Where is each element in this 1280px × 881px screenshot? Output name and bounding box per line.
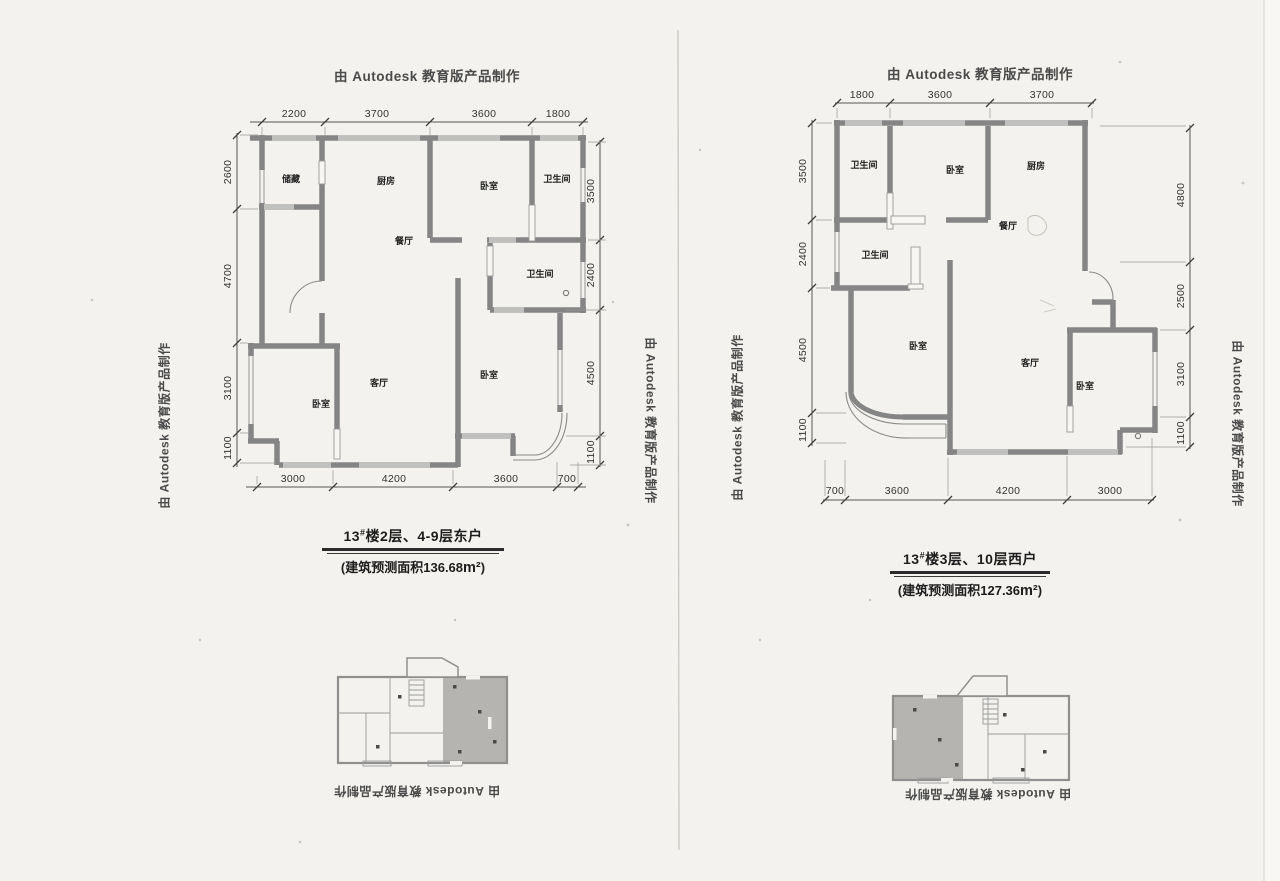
left-key-plan: [338, 658, 507, 766]
area-value: 127.36: [980, 583, 1020, 598]
right-plan-dimension-labels: 1800 3600 3700 3500 2400 4500 1100 4800 …: [797, 89, 1187, 497]
dim-label: 2400: [585, 263, 597, 288]
dim-label: 3600: [885, 485, 910, 497]
dim-label: 3500: [797, 159, 809, 184]
left-plan-area: (建筑预测面积136.68m²): [318, 557, 508, 576]
dim-label: 3600: [494, 473, 519, 485]
dim-label: 3700: [1030, 89, 1055, 101]
title-number: 13: [343, 528, 360, 544]
autodesk-watermark-right-edge-left-page: 由 Autodesk 教育版产品制作: [643, 326, 660, 516]
dim-label: 1800: [850, 89, 875, 101]
key-plan-shaded-east-unit: [443, 677, 507, 763]
dim-label: 700: [826, 485, 844, 497]
left-floor-plan: 2200 3700 3600 1800 2600 4700 3100 1100 …: [222, 108, 606, 491]
dim-label: 3000: [281, 473, 306, 485]
right-floor-plan: 1800 3600 3700 3500 2400 4500 1100 4800 …: [797, 89, 1194, 504]
dim-label: 4500: [585, 361, 597, 386]
dim-label: 4200: [996, 485, 1021, 497]
dim-label: 4500: [797, 338, 809, 363]
area-unit: m²: [1020, 583, 1038, 599]
key-plan-stair-shaft: [957, 676, 1007, 696]
paren: ): [481, 560, 485, 575]
autodesk-watermark-left-edge-right-page: 由 Autodesk 教育版产品制作: [729, 323, 746, 513]
room-label-bedroom: 卧室: [946, 164, 964, 175]
key-plan-shaded-west-unit: [893, 696, 963, 780]
right-plan-walls: [831, 120, 1157, 455]
autodesk-watermark-right-edge-right-page: 由 Autodesk 教育版产品制作: [1230, 329, 1247, 519]
room-label-bathroom: 卫生间: [850, 159, 877, 170]
autodesk-watermark-top-right-page: 由 Autodesk 教育版产品制作: [887, 63, 1073, 83]
dim-label: 1100: [222, 436, 234, 460]
dim-label: 4200: [382, 473, 407, 485]
room-label-bathroom: 卫生间: [526, 268, 553, 279]
dim-label: 3000: [1098, 485, 1123, 497]
dim-label: 4700: [222, 264, 234, 289]
scanned-floorplan-document: 2200 3700 3600 1800 2600 4700 3100 1100 …: [0, 0, 1280, 881]
autodesk-watermark-bottom-right-page: 由 Autodesk 教育版产品制作: [893, 786, 1083, 803]
left-plan-title: 13#楼2层、4-9层东户: [318, 526, 508, 546]
right-plan-area: (建筑预测面积127.36m²): [880, 580, 1060, 599]
room-label-bedroom: 卧室: [480, 369, 498, 380]
dim-label: 2500: [1175, 284, 1187, 309]
area-value: 136.68: [423, 560, 463, 575]
dim-label: 1100: [1175, 421, 1187, 445]
area-label: 建筑预测面积: [345, 560, 423, 575]
key-plan-stair-shaft: [407, 658, 458, 677]
room-label-dining: 餐厅: [394, 235, 413, 246]
room-label-bedroom: 卧室: [909, 340, 927, 351]
autodesk-watermark-bottom-left-page: 由 Autodesk 教育版产品制作: [322, 783, 512, 800]
room-label-kitchen: 厨房: [1027, 160, 1045, 171]
left-plan-dimension-labels: 2200 3700 3600 1800 2600 4700 3100 1100 …: [222, 108, 597, 485]
dim-label: 700: [558, 473, 576, 485]
area-label: 建筑预测面积: [902, 583, 980, 598]
right-plan-wall-arc: [851, 390, 903, 417]
right-plan-title-block: 13#楼3层、10层西户 (建筑预测面积127.36m²): [880, 549, 1060, 599]
dim-label: 1100: [585, 440, 597, 464]
autodesk-watermark-top-left-page: 由 Autodesk 教育版产品制作: [334, 65, 520, 85]
area-unit: m²: [463, 560, 481, 576]
title-text: 楼3层、10层西户: [925, 551, 1037, 567]
right-key-plan: [893, 676, 1069, 783]
right-plan-doors: [887, 193, 1073, 432]
room-label-bathroom: 卫生间: [543, 173, 570, 184]
autodesk-watermark-left-edge-left-page: 由 Autodesk 教育版产品制作: [156, 331, 173, 521]
dim-label: 2200: [282, 108, 307, 120]
dim-label: 3100: [222, 376, 234, 401]
title-underline: [322, 548, 504, 551]
dim-label: 2400: [797, 242, 809, 267]
dim-label: 3600: [928, 89, 953, 101]
title-underline-thin: [894, 576, 1046, 577]
dim-label: 1800: [546, 108, 571, 120]
right-plan-arcs: [846, 272, 1141, 439]
room-label-living: 客厅: [1020, 357, 1039, 368]
room-label-bedroom: 卧室: [312, 398, 330, 409]
left-plan-title-block: 13#楼2层、4-9层东户 (建筑预测面积136.68m²): [318, 526, 508, 576]
room-label-kitchen: 厨房: [377, 175, 395, 186]
left-plan-walls: [248, 135, 586, 467]
paren: ): [1038, 583, 1042, 598]
room-label-bedroom: 卧室: [480, 180, 498, 191]
room-label-storage: 储藏: [282, 173, 300, 184]
room-label-bedroom: 卧室: [1076, 380, 1094, 391]
dim-label: 4800: [1175, 183, 1187, 208]
dim-label: 3600: [472, 108, 497, 120]
dim-label: 2600: [222, 160, 234, 185]
right-plan-title: 13#楼3层、10层西户: [880, 549, 1060, 569]
dim-label: 3500: [585, 179, 597, 204]
room-label-dining: 餐厅: [998, 220, 1017, 231]
title-number: 13: [903, 551, 920, 567]
title-underline-thin: [327, 553, 499, 554]
floor-plan-drawing: 2200 3700 3600 1800 2600 4700 3100 1100 …: [0, 0, 1280, 881]
room-label-bathroom: 卫生间: [861, 249, 888, 260]
title-underline: [890, 571, 1050, 574]
room-label-living: 客厅: [369, 377, 388, 388]
dim-label: 3700: [365, 108, 390, 120]
dim-label: 3100: [1175, 362, 1187, 387]
dim-label: 1100: [797, 418, 809, 442]
title-text: 楼2层、4-9层东户: [366, 528, 483, 544]
left-plan-room-labels: 储藏 厨房 卧室 卫生间 餐厅 卫生间 卧室 客厅 卧室: [282, 173, 571, 409]
